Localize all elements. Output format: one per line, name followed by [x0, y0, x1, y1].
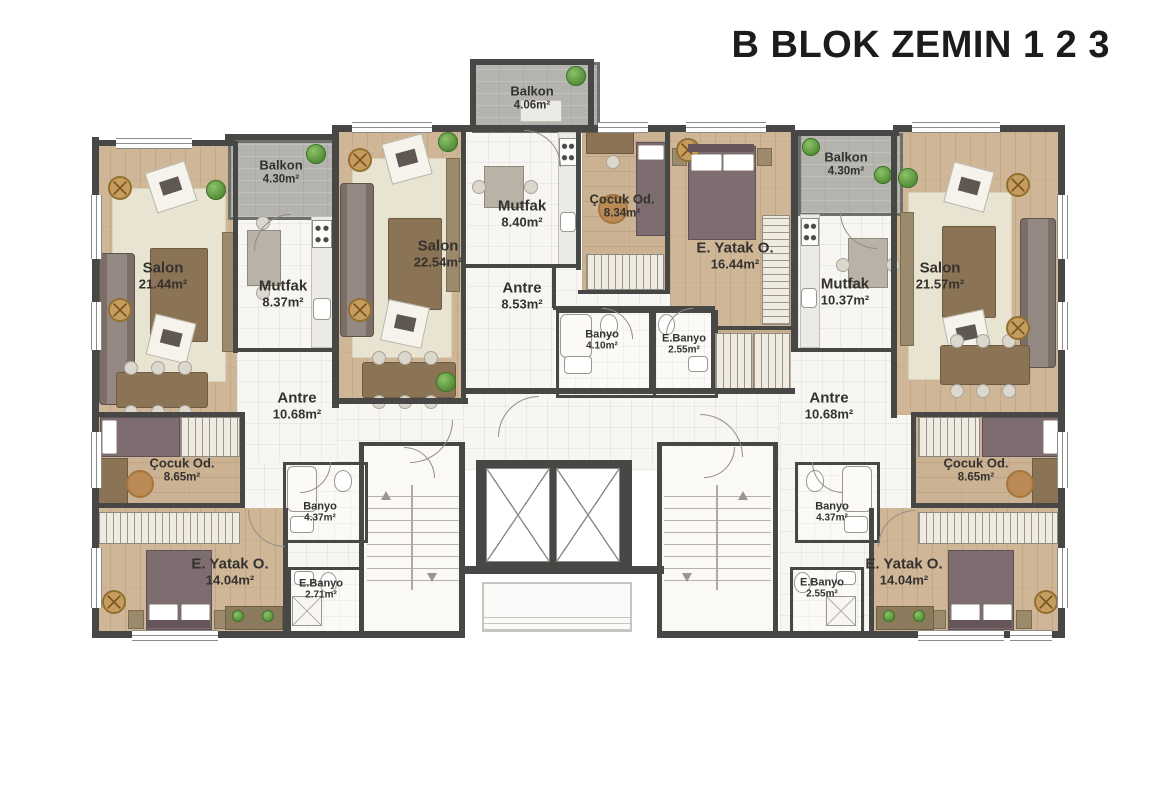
elevator-shaft — [556, 468, 620, 562]
plant-icon — [306, 144, 326, 164]
stair-divider — [716, 485, 718, 590]
plant-icon — [874, 166, 892, 184]
room-name: Mutfak — [259, 278, 307, 295]
pillow — [983, 604, 1012, 621]
window — [1057, 432, 1068, 488]
window — [132, 630, 218, 641]
chair-icon — [424, 351, 438, 365]
room-area: 14.04m² — [865, 573, 942, 588]
room-label-balkon-left: Balkon4.30m² — [259, 158, 302, 185]
room-name: E.Banyo — [662, 332, 706, 344]
wall — [649, 310, 653, 394]
elevator-shaft — [486, 468, 550, 562]
room-name: Salon — [916, 260, 964, 277]
window — [686, 122, 766, 133]
window — [91, 195, 102, 259]
wall — [711, 306, 715, 394]
room-label-balkon-right: Balkon4.30m² — [824, 150, 867, 177]
chair-icon — [472, 180, 486, 194]
plant-icon — [436, 372, 456, 392]
window — [91, 548, 102, 608]
wall — [891, 130, 897, 418]
room-area: 4.10m² — [585, 341, 619, 352]
stair-arrow-icon — [682, 573, 692, 582]
room-label-banyo-left: Banyo4.37m² — [303, 500, 337, 524]
wall — [588, 59, 594, 131]
wall — [657, 631, 778, 638]
room-name: Antre — [805, 390, 853, 407]
wall — [795, 348, 895, 352]
headboard — [948, 620, 1012, 628]
wall — [911, 412, 916, 508]
ceiling-fan-icon — [1006, 316, 1030, 340]
plant-icon — [262, 610, 274, 622]
room-area: 2.55m² — [662, 345, 706, 356]
window — [912, 122, 1000, 133]
chair-icon — [151, 361, 165, 375]
room-label-antre-center: Antre8.53m² — [501, 280, 542, 311]
room-label-ebanyo-left: E.Banyo2.71m² — [299, 577, 343, 601]
room-name: E.Banyo — [800, 576, 844, 588]
elevator-block — [476, 460, 632, 572]
chair-icon — [178, 361, 192, 375]
shower — [826, 596, 856, 626]
wall — [657, 442, 662, 638]
room-name: Balkon — [510, 84, 553, 99]
plant-icon — [438, 132, 458, 152]
room-area: 14.04m² — [191, 573, 268, 588]
room-label-mutfak-right: Mutfak10.37m² — [821, 276, 869, 307]
room-name: Çocuk Od. — [943, 456, 1008, 471]
chair-icon — [124, 361, 138, 375]
room-name: Çocuk Od. — [589, 192, 654, 207]
pillow — [181, 604, 210, 621]
wall — [711, 326, 793, 330]
room-area: 4.30m² — [259, 173, 302, 186]
room-area: 4.06m² — [510, 99, 553, 112]
room-name: Balkon — [259, 158, 302, 173]
wall — [665, 128, 670, 294]
wall — [461, 566, 664, 574]
room-name: Balkon — [824, 150, 867, 165]
wall — [240, 412, 245, 508]
room-area: 4.37m² — [815, 513, 849, 524]
room-area: 4.30m² — [824, 165, 867, 178]
wardrobe — [753, 333, 790, 391]
room-area: 21.57m² — [916, 277, 964, 292]
plan-title: B BLOK ZEMIN 1 2 3 — [732, 24, 1111, 67]
plant-icon — [913, 610, 925, 622]
window — [1057, 302, 1068, 350]
wall — [92, 412, 243, 417]
wall — [359, 631, 465, 638]
room-label-antre-left: Antre10.68m² — [273, 390, 321, 421]
nightstand — [1016, 610, 1032, 629]
nightstand — [128, 610, 144, 629]
room-area: 8.37m² — [259, 295, 307, 310]
room-name: Çocuk Od. — [149, 456, 214, 471]
room-name: Salon — [414, 238, 462, 255]
room-area: 8.65m² — [149, 471, 214, 484]
headboard — [146, 620, 210, 628]
room-area: 8.65m² — [943, 471, 1008, 484]
room-label-eyatak-left: E. Yatak O.14.04m² — [191, 556, 268, 587]
stair-treads — [367, 485, 459, 590]
tv-console — [446, 158, 460, 292]
window — [1010, 630, 1052, 641]
room-area: 10.68m² — [273, 407, 321, 422]
room-label-salon-right: Salon21.57m² — [916, 260, 964, 291]
room-area: 8.53m² — [501, 297, 542, 312]
kitchen-sink — [801, 288, 817, 308]
nightstand — [757, 148, 772, 166]
plant-icon — [883, 610, 895, 622]
plant-icon — [206, 180, 226, 200]
ceiling-fan-icon — [1034, 590, 1058, 614]
window — [1057, 548, 1068, 608]
room-label-banyo-center: Banyo4.10m² — [585, 328, 619, 352]
entrance-porch — [482, 582, 632, 632]
room-label-mutfak-left: Mutfak8.37m² — [259, 278, 307, 309]
pillow — [951, 604, 980, 621]
chair-icon — [836, 258, 850, 272]
window — [1057, 195, 1068, 259]
entrance-steps — [484, 612, 630, 630]
wardrobe — [918, 417, 980, 457]
wall — [470, 59, 476, 131]
wardrobe — [586, 254, 664, 290]
stove-icon — [559, 138, 577, 166]
room-label-antre-right: Antre10.68m² — [805, 390, 853, 421]
wall — [470, 59, 594, 65]
chair-icon — [1002, 384, 1016, 398]
stair-divider — [411, 485, 413, 590]
pillow — [102, 420, 117, 454]
room-area: 10.37m² — [821, 293, 869, 308]
pillow — [1043, 420, 1058, 454]
plant-icon — [802, 138, 820, 156]
room-area: 21.44m² — [139, 277, 187, 292]
desk — [586, 132, 634, 154]
pillow — [691, 154, 722, 171]
room-name: E. Yatak O. — [696, 240, 773, 257]
room-label-cocuk-left: Çocuk Od.8.65m² — [149, 456, 214, 483]
tv-console — [900, 212, 914, 346]
window — [91, 302, 102, 350]
stair-arrow-icon — [738, 491, 748, 500]
wardrobe — [715, 333, 752, 391]
dining-table — [116, 372, 208, 408]
room-label-ebanyo-center: E.Banyo2.55m² — [662, 332, 706, 356]
chair-icon — [606, 155, 620, 169]
room-name: E. Yatak O. — [865, 556, 942, 573]
window — [352, 122, 432, 133]
kitchen-sink — [560, 212, 576, 232]
ceiling-fan-icon — [1006, 173, 1030, 197]
stove-icon — [312, 220, 332, 248]
chair-icon — [372, 351, 386, 365]
toilet — [334, 470, 352, 492]
round-rug — [1006, 470, 1034, 498]
ceiling-fan-icon — [102, 590, 126, 614]
wall — [795, 130, 899, 136]
chair-icon — [976, 334, 990, 348]
room-name: Banyo — [585, 328, 619, 340]
wardrobe — [918, 512, 1058, 544]
room-label-salon-center: Salon22.54m² — [414, 238, 462, 269]
wall — [225, 134, 335, 140]
room-area: 22.54m² — [414, 255, 462, 270]
wall — [334, 398, 468, 404]
wall — [359, 442, 364, 638]
wall — [578, 290, 670, 294]
room-area: 4.37m² — [303, 513, 337, 524]
headboard — [688, 144, 754, 152]
room-label-eyatak-right: E. Yatak O.14.04m² — [865, 556, 942, 587]
kitchen-sink — [313, 298, 331, 320]
chair-icon — [950, 384, 964, 398]
window — [918, 630, 1004, 641]
wall — [459, 442, 465, 638]
dining-table — [940, 345, 1030, 385]
armchair — [380, 299, 430, 349]
wall — [332, 125, 339, 408]
room-name: Antre — [273, 390, 321, 407]
ceiling-fan-icon — [348, 148, 372, 172]
window — [598, 122, 648, 133]
room-area: 10.68m² — [805, 407, 853, 422]
room-label-banyo-right: Banyo4.37m² — [815, 500, 849, 524]
room-label-cocuk-right: Çocuk Od.8.65m² — [943, 456, 1008, 483]
plant-icon — [232, 610, 244, 622]
room-label-eyatak-center: E. Yatak O.16.44m² — [696, 240, 773, 271]
room-name: Banyo — [815, 500, 849, 512]
stove-icon — [801, 218, 819, 246]
stair-arrow-icon — [427, 573, 437, 582]
ceiling-fan-icon — [108, 176, 132, 200]
room-area: 2.71m² — [299, 590, 343, 601]
stair-arrow-icon — [381, 491, 391, 500]
room-name: Mutfak — [498, 198, 546, 215]
wall — [911, 503, 1065, 508]
wardrobe — [98, 512, 240, 544]
room-area: 16.44m² — [696, 257, 773, 272]
window — [91, 432, 102, 488]
chair-icon — [976, 384, 990, 398]
pillow — [723, 154, 754, 171]
pillow — [638, 145, 664, 160]
pillow — [149, 604, 178, 621]
chair-icon — [950, 334, 964, 348]
room-name: E.Banyo — [299, 577, 343, 589]
desk — [98, 458, 128, 506]
room-name: Mutfak — [821, 276, 869, 293]
wardrobe — [180, 417, 240, 457]
plant-icon — [898, 168, 918, 188]
room-area: 8.40m² — [498, 215, 546, 230]
wall — [773, 442, 778, 638]
room-label-ebanyo-right: E.Banyo2.55m² — [800, 576, 844, 600]
wall — [552, 268, 556, 308]
room-name: Antre — [501, 280, 542, 297]
bathroom-sink — [688, 356, 708, 372]
chair-icon — [524, 180, 538, 194]
room-label-balkon-center: Balkon4.06m² — [510, 84, 553, 111]
wall — [233, 141, 238, 353]
room-area: 2.55m² — [800, 589, 844, 600]
wall — [461, 388, 795, 394]
ceiling-fan-icon — [348, 298, 372, 322]
room-name: Salon — [139, 260, 187, 277]
room-label-cocuk-center: Çocuk Od.8.34m² — [589, 192, 654, 219]
ceiling-fan-icon — [108, 298, 132, 322]
wall — [576, 128, 581, 270]
room-name: E. Yatak O. — [191, 556, 268, 573]
room-name: Banyo — [303, 500, 337, 512]
floor-plan-canvas: B BLOK ZEMIN 1 2 3 — [0, 0, 1159, 800]
room-label-salon-left: Salon21.44m² — [139, 260, 187, 291]
wall — [791, 130, 798, 352]
chair-icon — [398, 351, 412, 365]
wall — [237, 348, 335, 352]
wall — [92, 503, 243, 508]
wall — [466, 264, 578, 268]
plant-icon — [566, 66, 586, 86]
wall — [911, 412, 1065, 417]
room-area: 8.34m² — [589, 207, 654, 220]
room-label-mutfak-center: Mutfak8.40m² — [498, 198, 546, 229]
bathroom-sink — [564, 356, 592, 374]
window — [116, 138, 192, 149]
